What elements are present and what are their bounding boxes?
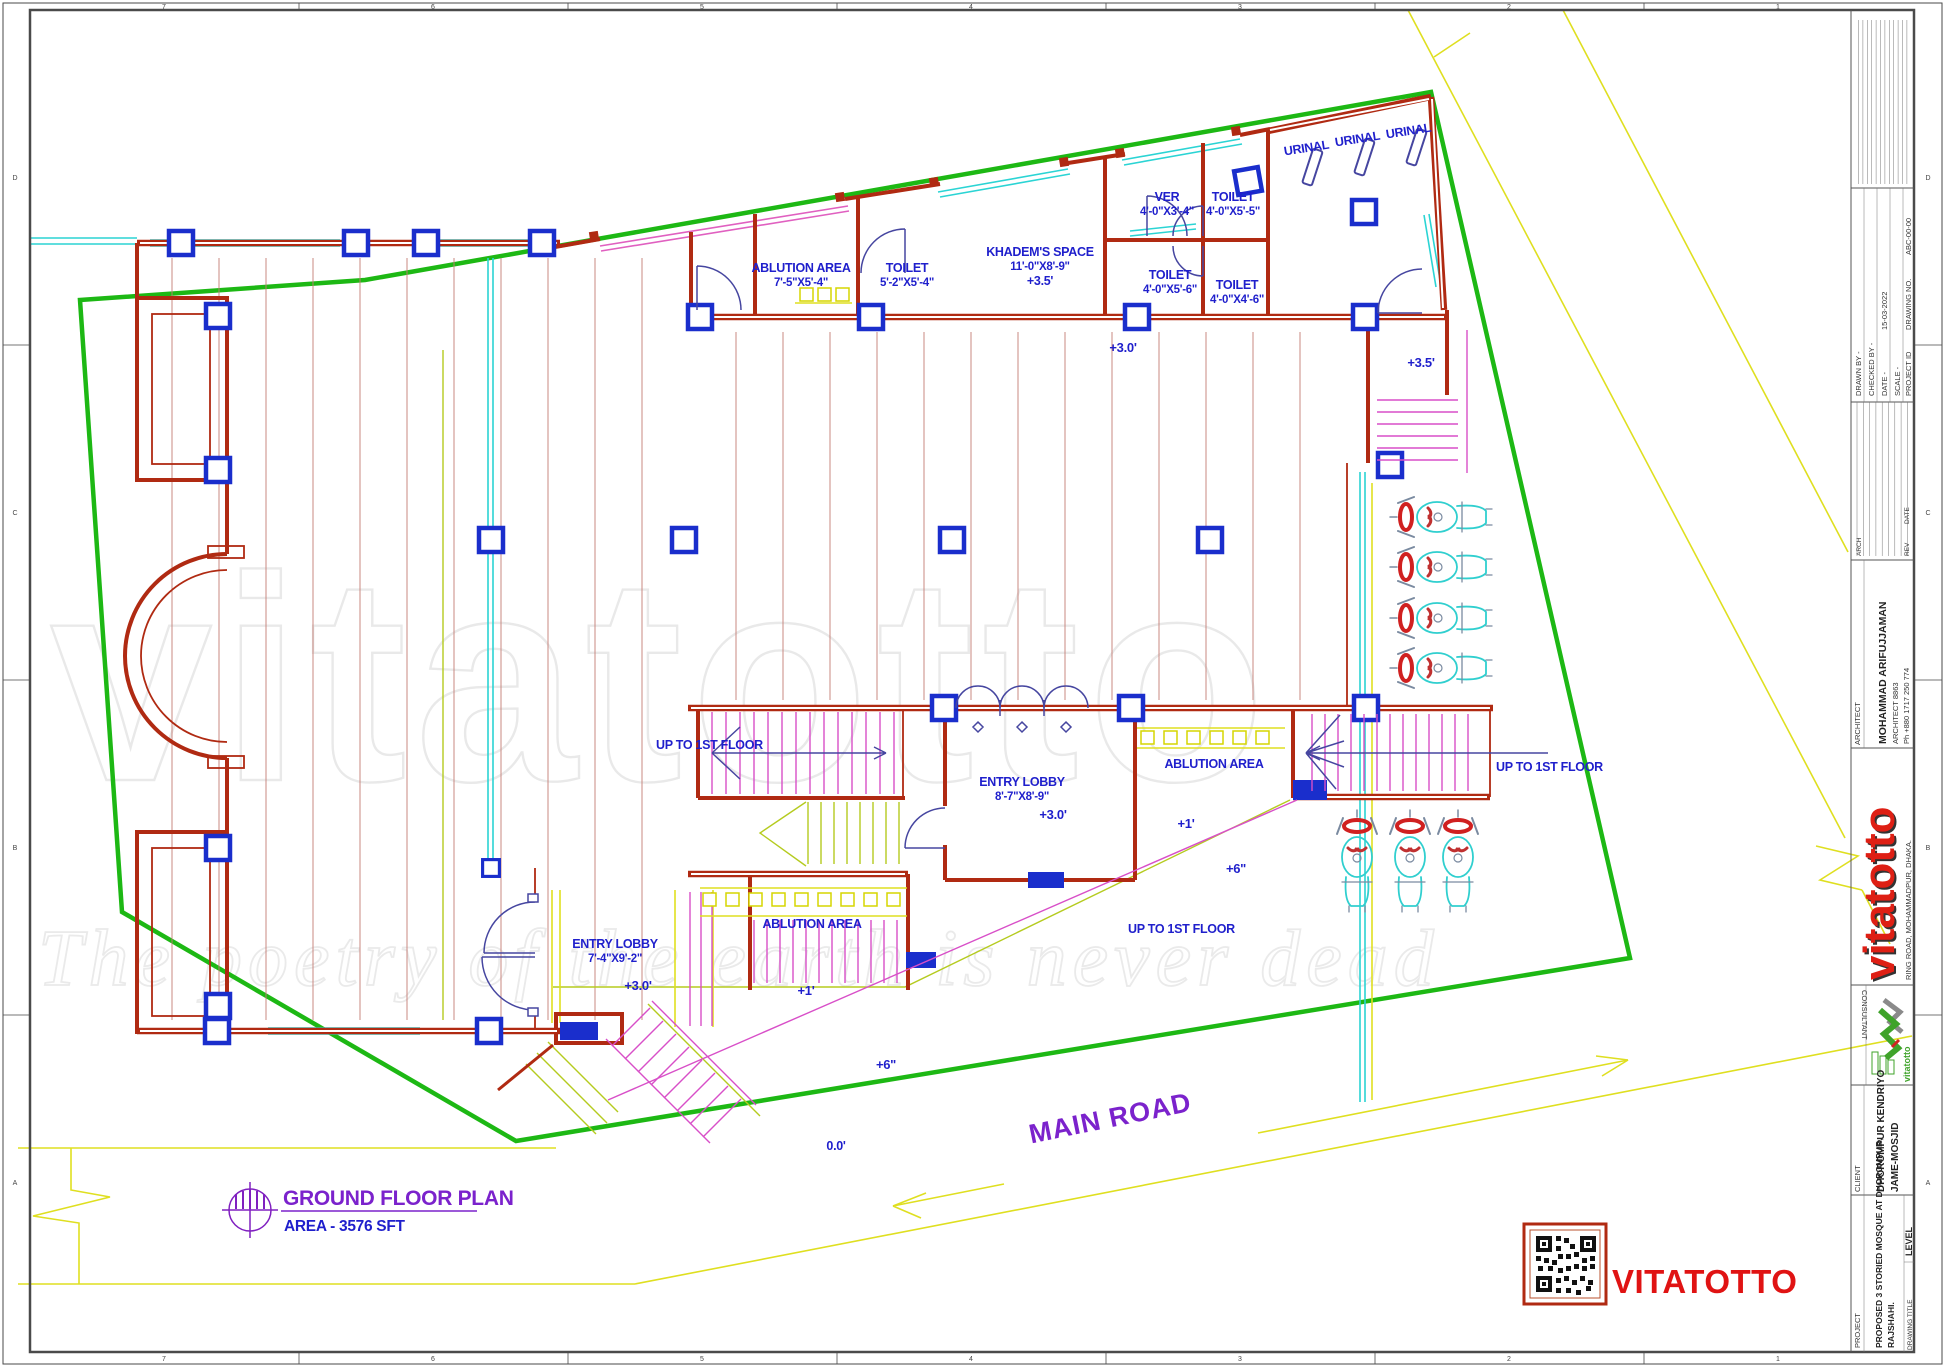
- project-section: PROJECT PROPOSED 3 STORIED MOSQUE AT DHO…: [1853, 1138, 1914, 1352]
- entry-steps-diagonal: [612, 1008, 741, 1137]
- svg-text:1: 1: [1776, 1356, 1780, 1363]
- level-label: +6": [876, 1057, 896, 1072]
- room-label: TOILET: [1212, 190, 1255, 204]
- room-dim: 7'-4"X9'-2": [588, 953, 642, 965]
- svg-text:A: A: [13, 1180, 18, 1187]
- svg-text:C: C: [12, 510, 17, 517]
- level-label: +1': [1177, 816, 1194, 831]
- client-name-2: JAME-MOSJID: [1890, 1123, 1901, 1192]
- architect-section: ARCHITECT MOHAMMAD ARIFUJJAMAN ARCHITECT…: [1853, 560, 1911, 748]
- field-date-value: 15-03-2022: [1880, 292, 1889, 330]
- room-label: ABLUTION AREA: [751, 261, 850, 275]
- north-symbol: [222, 1182, 278, 1238]
- drawing-title-label: DRAWING TITLE: [1907, 1299, 1914, 1350]
- field-project-id: PROJECT ID: [1904, 351, 1913, 396]
- svg-text:3: 3: [1238, 4, 1242, 11]
- svg-text:B: B: [13, 845, 18, 852]
- field-drawing-no-label: DRAWING NO.: [1904, 279, 1913, 330]
- svg-text:C: C: [1925, 510, 1930, 517]
- room-dim: 4'-0"X5'-6": [1143, 284, 1197, 296]
- project-header: PROJECT: [1853, 1313, 1862, 1348]
- svg-text:4: 4: [969, 4, 973, 11]
- field-scale: SCALE -: [1893, 366, 1902, 396]
- field-drawing-no-value: ABC-00-00: [1904, 218, 1913, 255]
- field-drawn-by: DRAWN BY -: [1854, 351, 1863, 396]
- svg-text:A: A: [1926, 1180, 1931, 1187]
- brand-address: RING ROAD, MOHAMMADPUR, DHAKA.: [1904, 840, 1913, 980]
- room-label: ABLUTION AREA: [1164, 757, 1263, 771]
- room-level: +3.5': [1027, 274, 1053, 288]
- room-dim: 11'-0"X8'-9": [1010, 261, 1069, 273]
- brand-section: vitatotto vitatotto RING ROAD, MOHAMMADP…: [1855, 806, 1913, 982]
- room-dim: 8'-7"X8'-9": [995, 791, 1049, 803]
- ground-level-label: 0.0': [826, 1139, 845, 1153]
- room-label: TOILET: [886, 261, 929, 275]
- project-name-1: PROPOSED 3 STORIED MOSQUE AT DHOROMPUR,: [1874, 1138, 1884, 1348]
- room-label: ENTRY LOBBY: [979, 775, 1066, 789]
- room-label: ENTRY LOBBY: [572, 937, 659, 951]
- notes-lines: [1859, 20, 1907, 184]
- svg-text:5: 5: [700, 1356, 704, 1363]
- plan-area: AREA - 3576 SFT: [284, 1218, 406, 1235]
- room-label: TOILET: [1149, 268, 1192, 282]
- architect-reg: ARCHITECT 8863: [1891, 682, 1900, 744]
- level-label: +3.0': [1109, 340, 1136, 355]
- level-label: +3.0': [1039, 807, 1066, 822]
- main-road-label: MAIN ROAD: [1026, 1087, 1194, 1149]
- svg-text:3: 3: [1238, 1356, 1242, 1363]
- plan-title: GROUND FLOOR PLAN: [283, 1187, 514, 1210]
- ablution-bench-top: [795, 288, 852, 303]
- titleblock-fields: DRAWN BY - CHECKED BY - DATE - 15-03-202…: [1854, 188, 1913, 402]
- svg-text:D: D: [1925, 175, 1930, 182]
- level-label: +1': [797, 983, 814, 998]
- urinal-label: URINAL: [1334, 128, 1382, 149]
- architect-name: MOHAMMAD ARIFUJJAMAN: [1877, 601, 1889, 744]
- svg-text:5: 5: [700, 4, 704, 11]
- watermark-word: vitatotto: [50, 516, 1274, 842]
- room-dim: 4'-0"X5'-5": [1206, 206, 1260, 218]
- field-checked-by: CHECKED BY -: [1867, 342, 1876, 396]
- room-dim: 4'-0"X4'-6": [1210, 294, 1264, 306]
- level-label: LEVEL: [1904, 1226, 1914, 1256]
- ablution-bench-center: [700, 888, 907, 916]
- plan-title-block: GROUND FLOOR PLAN AREA - 3576 SFT: [222, 1182, 514, 1238]
- svg-text:2: 2: [1507, 4, 1511, 11]
- room-label: ABLUTION AREA: [762, 917, 861, 931]
- cad-sheet: vitatotto The poetry of the earth is nev…: [0, 0, 1945, 1367]
- room-dim: 5'-2"X5'-4": [880, 277, 934, 289]
- svg-text:1: 1: [1776, 4, 1780, 11]
- title-block: DRAWN BY - CHECKED BY - DATE - 15-03-202…: [1851, 10, 1914, 1352]
- svg-text:B: B: [1926, 845, 1931, 852]
- architect-header: ARCHITECT: [1853, 702, 1862, 745]
- level-label: +3.0': [624, 978, 651, 993]
- architect-phone: Ph +880 1717 250 774: [1902, 668, 1911, 744]
- svg-text:2: 2: [1507, 1356, 1511, 1363]
- room-label: KHADEM'S SPACE: [986, 245, 1094, 259]
- client-header: CLIENT: [1853, 1165, 1862, 1192]
- room-label: VER: [1155, 190, 1180, 204]
- stair-label: UP TO 1ST FLOOR: [1128, 922, 1235, 936]
- svg-text:6: 6: [431, 1356, 435, 1363]
- revision-table: REV DATE ARCH: [1856, 402, 1911, 556]
- brand-wordmark: vitatotto: [1855, 806, 1904, 980]
- svg-text:4: 4: [969, 1356, 973, 1363]
- field-date-label: DATE -: [1880, 371, 1889, 396]
- stair-label: UP TO 1ST FLOOR: [656, 738, 763, 752]
- svg-text:6: 6: [431, 4, 435, 11]
- project-name-2: RAJSHAHI.: [1886, 1302, 1896, 1348]
- floor-plan-drawing: vitatotto The poetry of the earth is nev…: [0, 0, 1945, 1367]
- rev-label: REV: [1904, 542, 1911, 556]
- svg-text:D: D: [12, 175, 17, 182]
- stair-label: UP TO 1ST FLOOR: [1496, 760, 1603, 774]
- consultant-logo: [1872, 1000, 1902, 1074]
- arch-label: ARCH: [1856, 537, 1863, 556]
- level-label: +3.5': [1407, 355, 1434, 370]
- room-label: TOILET: [1216, 278, 1259, 292]
- room-dim: 4'-0"X3'-4": [1140, 206, 1194, 218]
- room-dim: 7'-5"X5'-4": [774, 277, 828, 289]
- consultant-wordmark: vitatotto: [1902, 1046, 1912, 1082]
- level-label: +6": [1226, 861, 1246, 876]
- stamp-wordmark: VITATOTTO: [1612, 1263, 1797, 1300]
- consultant-label: CONSULTANT: [1860, 990, 1869, 1040]
- stamp-block: VITATOTTO: [1524, 1224, 1797, 1304]
- svg-text:7: 7: [162, 4, 166, 11]
- rev-date-label: DATE: [1904, 506, 1911, 524]
- svg-text:7: 7: [162, 1356, 166, 1363]
- urinal-label: URINAL: [1283, 137, 1331, 158]
